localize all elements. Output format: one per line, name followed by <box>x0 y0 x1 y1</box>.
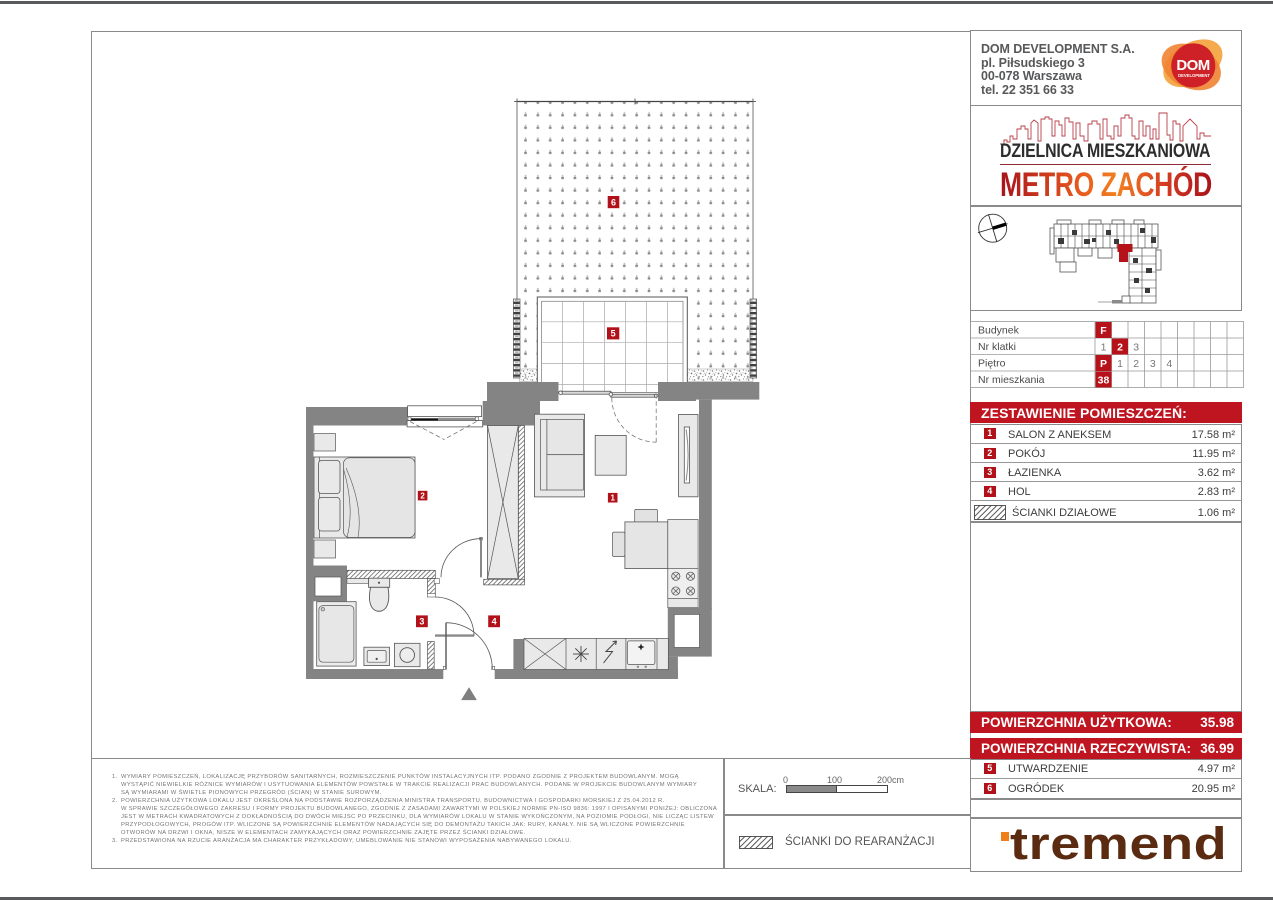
svg-text:Nr klatki: Nr klatki <box>978 341 1016 353</box>
svg-text:3: 3 <box>1133 341 1139 353</box>
svg-text:Nr mieszkania: Nr mieszkania <box>978 374 1045 386</box>
svg-text:2: 2 <box>1117 341 1123 353</box>
svg-text:2: 2 <box>420 491 425 500</box>
svg-text:38: 38 <box>1098 374 1110 386</box>
svg-text:4: 4 <box>1166 358 1172 370</box>
svg-text:P: P <box>1100 358 1107 370</box>
svg-text:Budynek: Budynek <box>978 325 1020 337</box>
svg-text:6: 6 <box>611 198 616 208</box>
svg-text:2: 2 <box>1133 358 1139 370</box>
svg-text:1: 1 <box>1101 341 1107 353</box>
svg-text:3: 3 <box>1150 358 1156 370</box>
svg-text:1: 1 <box>610 494 615 503</box>
svg-text:DEVELOPMENT: DEVELOPMENT <box>1178 73 1210 78</box>
svg-text:5: 5 <box>611 329 616 339</box>
svg-text:4: 4 <box>492 617 497 627</box>
svg-text:F: F <box>1100 325 1107 337</box>
svg-text:Piętro: Piętro <box>978 358 1006 370</box>
svg-text:1: 1 <box>1117 358 1123 370</box>
svg-text:DOM: DOM <box>1176 57 1209 74</box>
svg-text:3: 3 <box>419 617 424 627</box>
